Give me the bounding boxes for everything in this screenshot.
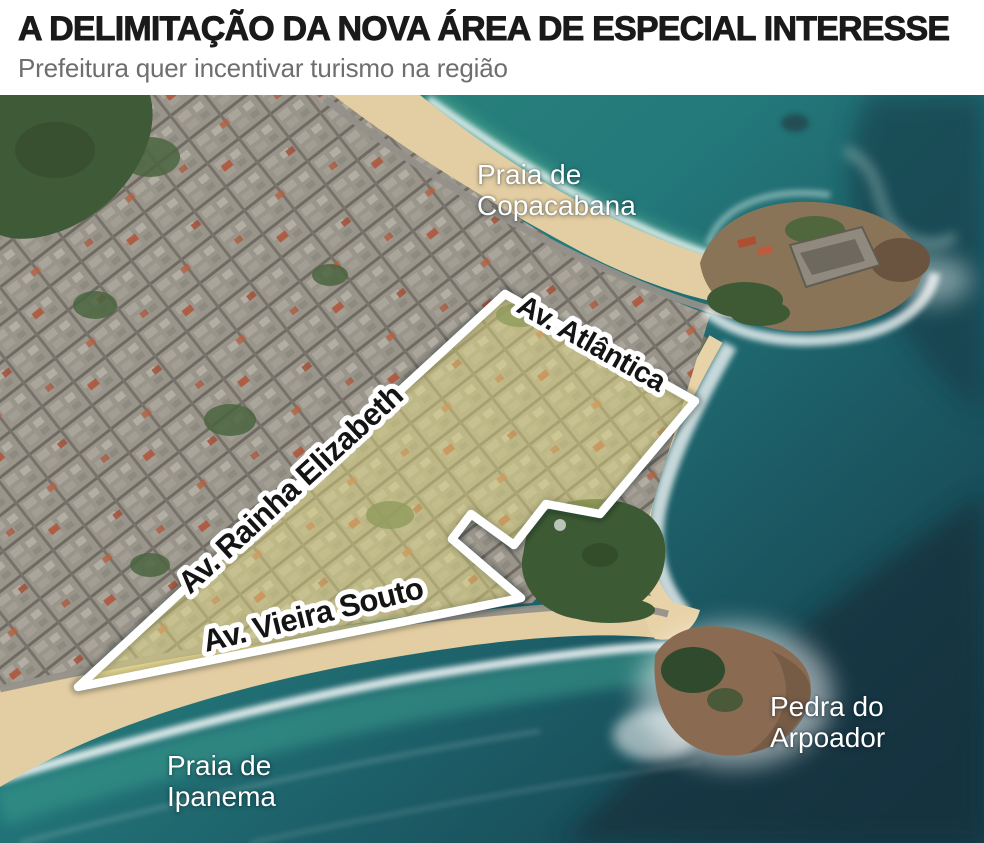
place-label-praia-de-ipanema: Praia de Ipanema xyxy=(167,750,276,812)
place-label-pedra-do-arpoador: Pedra do Arpoador xyxy=(770,691,885,753)
header: A DELIMITAÇÃO DA NOVA ÁREA DE ESPECIAL I… xyxy=(0,0,984,95)
place-label-praia-de-copacabana: Praia de Copacabana xyxy=(477,159,636,221)
infographic: A DELIMITAÇÃO DA NOVA ÁREA DE ESPECIAL I… xyxy=(0,0,984,843)
page-title: A DELIMITAÇÃO DA NOVA ÁREA DE ESPECIAL I… xyxy=(0,0,984,48)
page-subtitle: Prefeitura quer incentivar turismo na re… xyxy=(0,48,984,83)
satellite-map: Av. Atlântica Av. Rainha Elizabeth Av. V… xyxy=(0,95,984,843)
